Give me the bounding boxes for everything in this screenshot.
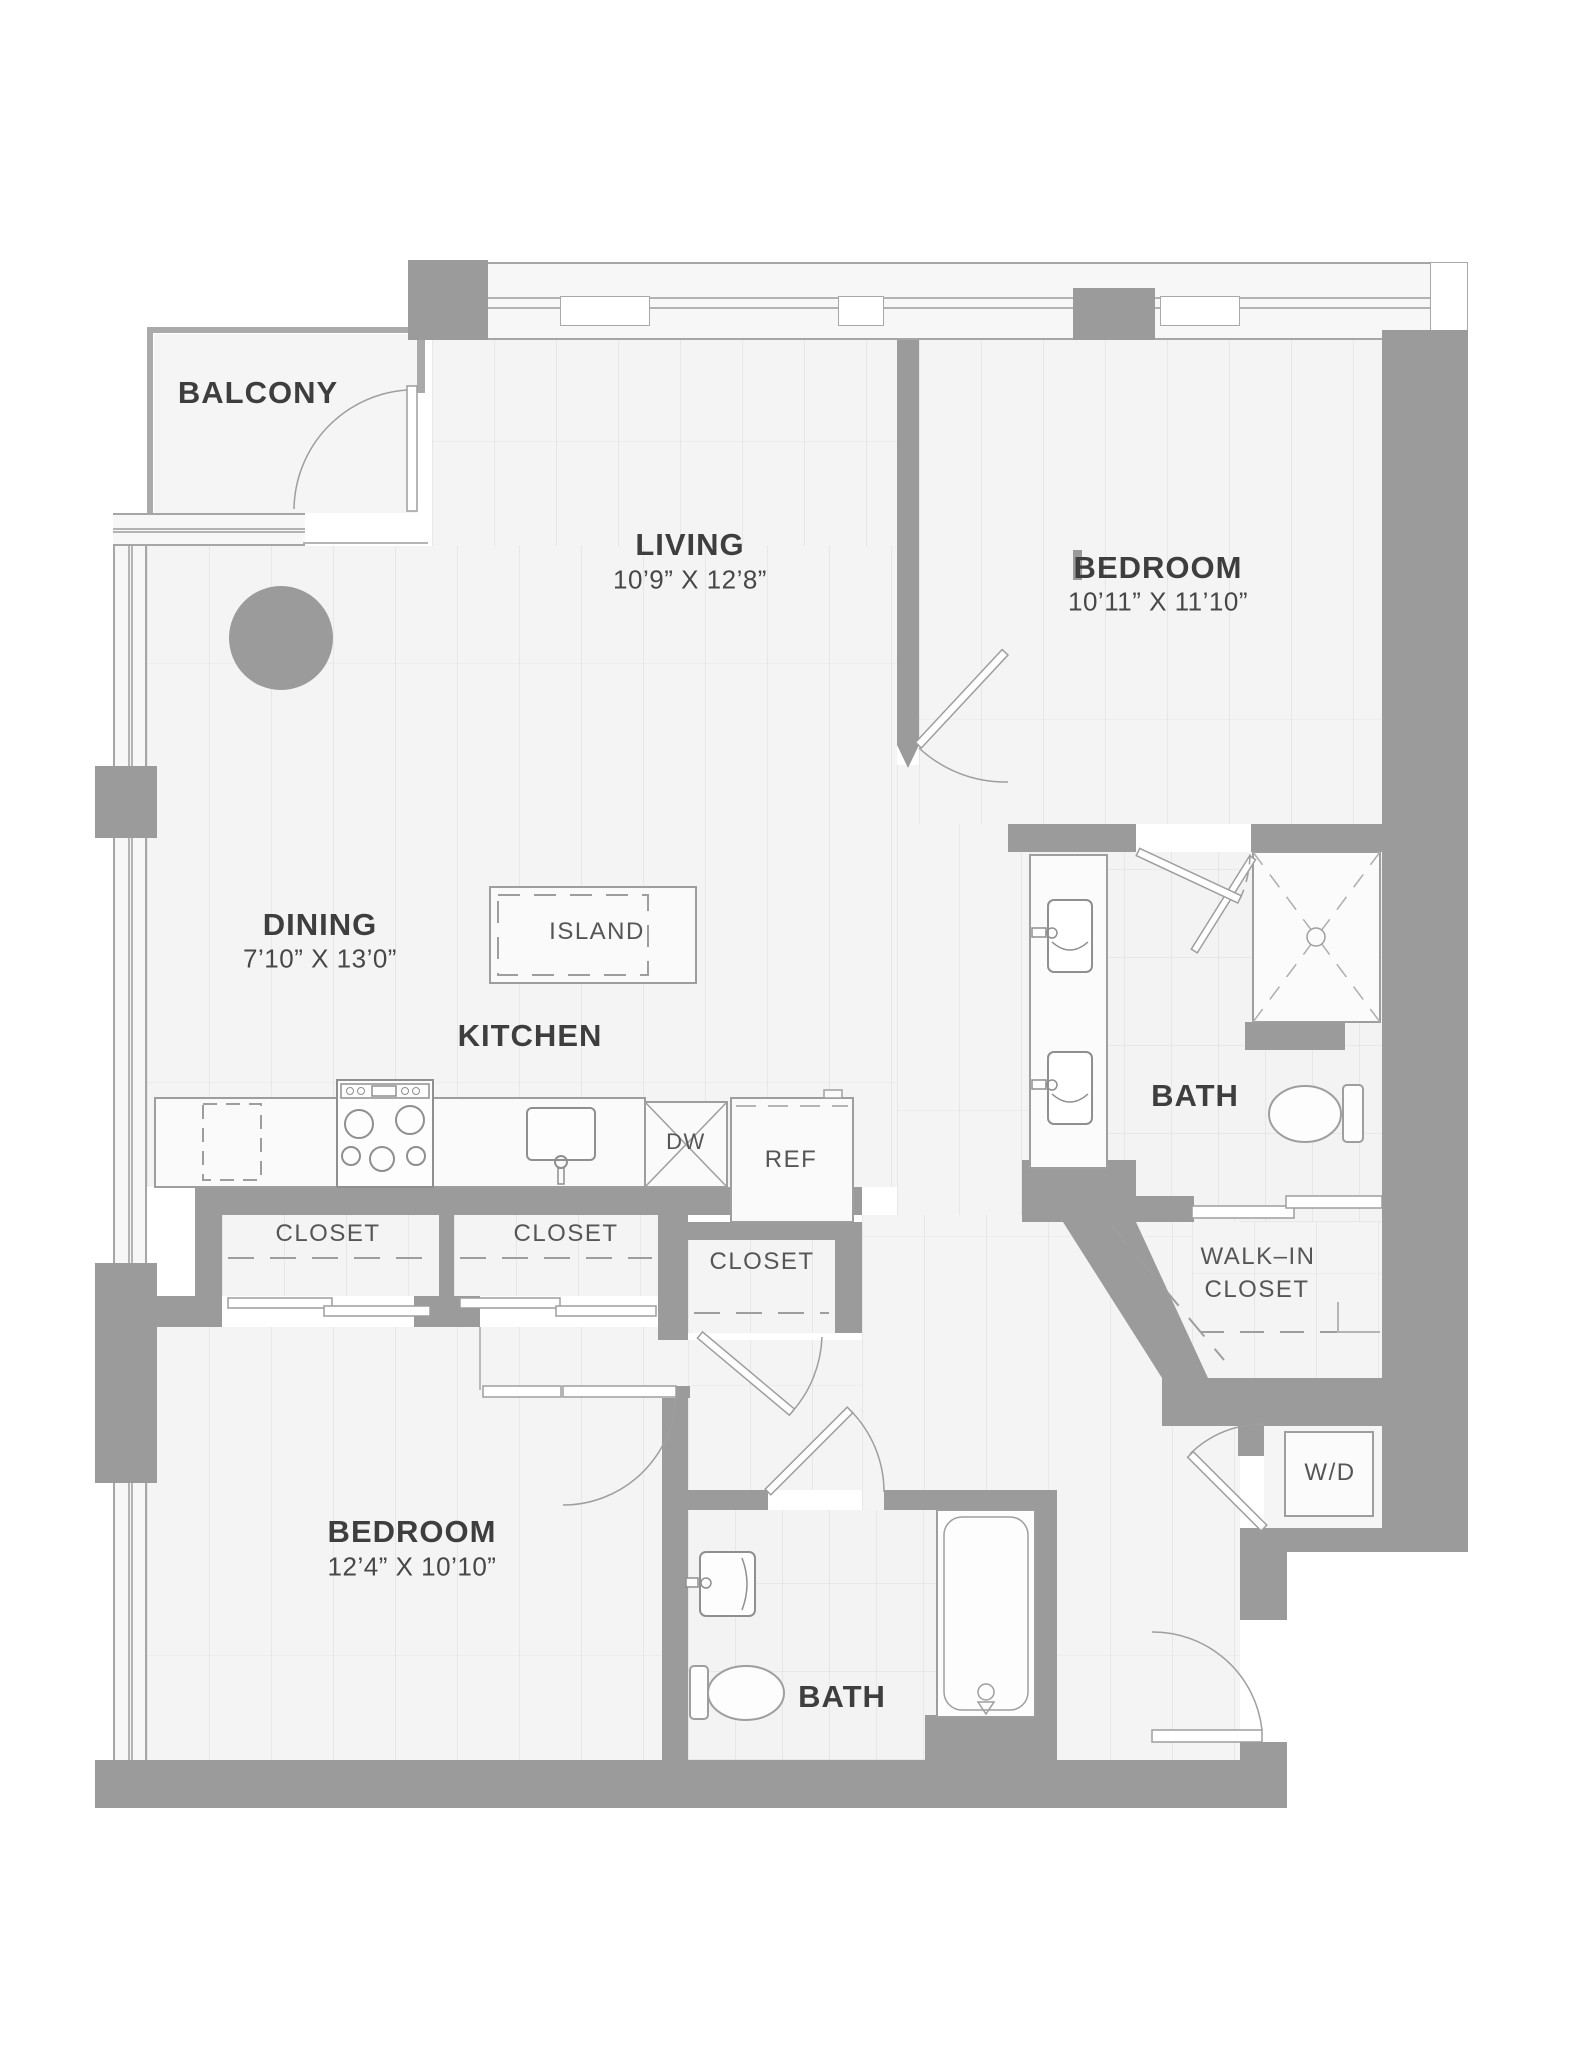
bedroom2-dims: 12’4” X 10’10”	[328, 1552, 497, 1583]
bath1-vanity	[1030, 855, 1107, 1168]
door-bedroom2	[563, 1386, 676, 1505]
door-wd	[1188, 1424, 1267, 1531]
bath2-sink	[686, 1552, 755, 1616]
wd-label: W/D	[1304, 1459, 1355, 1487]
door-closet3	[697, 1332, 822, 1415]
balcony-label: BALCONY	[178, 375, 338, 411]
bedroom1-label: BEDROOM	[1074, 550, 1243, 586]
plan-linework	[0, 0, 1583, 2048]
island-label: ISLAND	[549, 918, 645, 946]
bathtub	[937, 1510, 1035, 1717]
dining-dims: 7’10” X 13’0”	[243, 944, 397, 975]
door-bath1	[1136, 848, 1250, 903]
floor-plan: BALCONY LIVING 10’9” X 12’8” BEDROOM 10’…	[0, 0, 1583, 2048]
closet1-label: CLOSET	[275, 1220, 380, 1248]
bath2-label: BATH	[798, 1679, 886, 1715]
door-bedroom1	[916, 650, 1008, 782]
dining-label: DINING	[263, 907, 378, 943]
closet1-sliding-door	[228, 1298, 430, 1316]
living-label: LIVING	[635, 527, 744, 563]
wall-lite	[483, 1386, 561, 1397]
bedroom2-label: BEDROOM	[328, 1514, 497, 1550]
toilet-2	[690, 1666, 784, 1720]
walkin-shelf	[1338, 1302, 1380, 1332]
ref-label: REF	[765, 1146, 818, 1174]
door-entry	[1152, 1632, 1262, 1742]
dw-label: DW	[666, 1129, 706, 1155]
bedroom1-dims: 10’11” X 11’10”	[1068, 587, 1248, 618]
shower-door	[1191, 856, 1255, 953]
door-bath2	[765, 1407, 884, 1495]
closet2-label: CLOSET	[513, 1220, 618, 1248]
walkin-label-line2: CLOSET	[1204, 1276, 1309, 1304]
shower	[1191, 852, 1380, 1022]
living-dims: 10’9” X 12’8”	[613, 565, 767, 596]
column	[229, 586, 333, 690]
closet2-sliding-door	[460, 1298, 656, 1316]
stove	[337, 1080, 433, 1187]
walkin-sliding-door	[1192, 1196, 1382, 1218]
closet3-label: CLOSET	[709, 1248, 814, 1276]
wall-angled	[1063, 1222, 1208, 1378]
walkin-label-line1: WALK–IN	[1201, 1243, 1316, 1271]
bath1-label: BATH	[1151, 1078, 1239, 1114]
toilet-1	[1269, 1085, 1363, 1142]
kitchen-label: KITCHEN	[458, 1018, 603, 1054]
wall-tip	[897, 745, 919, 768]
